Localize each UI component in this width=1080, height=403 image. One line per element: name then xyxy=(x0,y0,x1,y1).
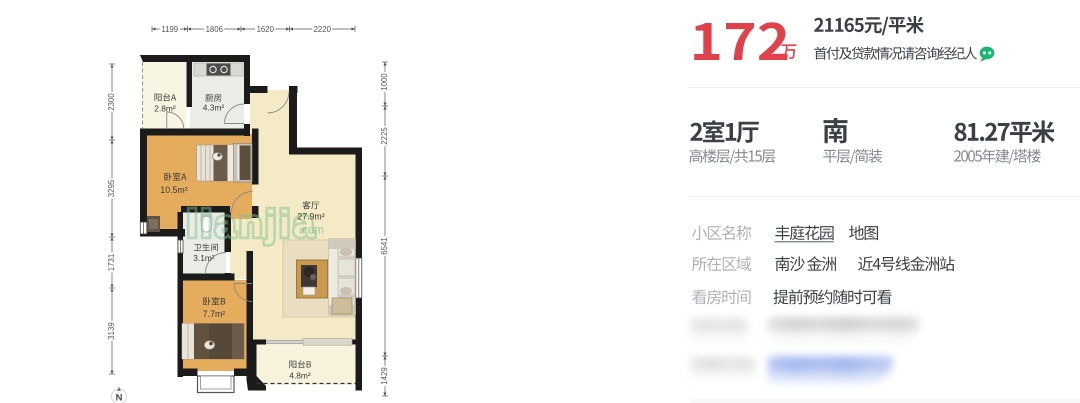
svg-text:1731: 1731 xyxy=(107,254,116,271)
svg-text:1429: 1429 xyxy=(380,367,389,384)
svg-text:2225: 2225 xyxy=(380,127,389,145)
svg-text:6541: 6541 xyxy=(380,237,389,254)
svg-text:3139: 3139 xyxy=(107,322,116,339)
svg-text:7.7m²: 7.7m² xyxy=(203,309,226,319)
svg-text:2220: 2220 xyxy=(314,25,332,34)
svg-text:.com: .com xyxy=(299,225,324,237)
svg-text:27.9m²: 27.9m² xyxy=(297,212,324,222)
svg-text:1000: 1000 xyxy=(380,73,389,91)
svg-text:3295: 3295 xyxy=(107,179,116,197)
svg-text:4.3m²: 4.3m² xyxy=(203,103,225,113)
svg-text:10.5m²: 10.5m² xyxy=(160,185,187,195)
svg-text:3.1m²: 3.1m² xyxy=(193,253,215,263)
svg-text:4.8m²: 4.8m² xyxy=(289,371,311,381)
svg-text:1620: 1620 xyxy=(257,25,275,34)
svg-text:N: N xyxy=(116,393,123,403)
svg-text:1199: 1199 xyxy=(161,25,178,34)
svg-text:2.8m²: 2.8m² xyxy=(154,104,176,114)
svg-text:1806: 1806 xyxy=(206,25,223,34)
svg-text:2300: 2300 xyxy=(107,93,116,111)
